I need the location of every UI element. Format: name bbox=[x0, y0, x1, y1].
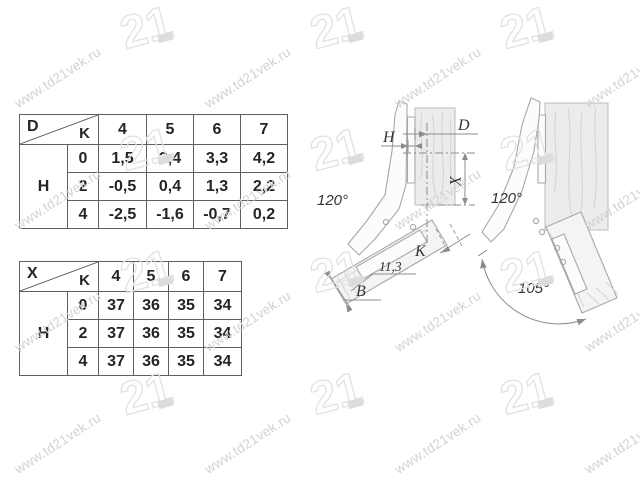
dim-label-x: X bbox=[448, 175, 465, 187]
mounting-plate bbox=[408, 117, 416, 183]
value-cell: 36 bbox=[134, 348, 169, 376]
row-key: 4 bbox=[68, 201, 99, 229]
arc-angle-label: 105° bbox=[518, 280, 549, 297]
value-cell: 37 bbox=[99, 320, 134, 348]
svg-text:21: 21 bbox=[497, 0, 558, 59]
value-cell: 0,2 bbox=[241, 201, 288, 229]
angle-label: 120° bbox=[491, 190, 522, 207]
value-cell: 4,2 bbox=[241, 145, 288, 173]
watermark-text: www.td21vek.ru bbox=[202, 410, 294, 477]
mounting-plate bbox=[538, 115, 546, 183]
value-cell: 2,4 bbox=[147, 145, 194, 173]
corner-label-bottom: K bbox=[79, 272, 90, 289]
table-corner-cell: D K bbox=[20, 115, 99, 145]
value-cell: 1,3 bbox=[194, 173, 241, 201]
col-header: 6 bbox=[194, 115, 241, 145]
col-header: 5 bbox=[134, 262, 169, 292]
svg-text:21: 21 bbox=[307, 0, 368, 59]
watermark-21-logo: 21 bbox=[497, 0, 563, 59]
value-cell: 1,5 bbox=[99, 145, 147, 173]
value-cell: 35 bbox=[169, 320, 204, 348]
svg-text:21: 21 bbox=[497, 363, 558, 425]
row-key: 0 bbox=[68, 292, 99, 320]
col-header: 4 bbox=[99, 115, 147, 145]
corner-label-top: D bbox=[27, 118, 39, 136]
col-header: 6 bbox=[169, 262, 204, 292]
pivot-rivet bbox=[533, 218, 538, 223]
table-row: H 0 1,5 2,4 3,3 4,2 bbox=[20, 145, 288, 173]
dim-label-b: B bbox=[356, 283, 366, 300]
watermark-text: www.td21vek.ru bbox=[12, 44, 104, 111]
row-group-label: H bbox=[20, 292, 68, 376]
hinge-arm bbox=[482, 98, 540, 242]
table-header-row: D K 4 5 6 7 bbox=[20, 115, 288, 145]
value-cell: 3,3 bbox=[194, 145, 241, 173]
value-cell: 35 bbox=[169, 348, 204, 376]
dim-label-d: D bbox=[457, 117, 470, 134]
angle-label: 120° bbox=[317, 192, 348, 209]
col-header: 7 bbox=[241, 115, 288, 145]
watermark-21-logo: 21 bbox=[307, 363, 373, 425]
value-cell: -0,5 bbox=[99, 173, 147, 201]
svg-text:21: 21 bbox=[307, 363, 368, 425]
hinge-arm bbox=[348, 101, 407, 255]
watermark-21-logo: 21 bbox=[497, 363, 563, 425]
watermark-text: www.td21vek.ru bbox=[202, 44, 294, 111]
dim-label-k: K bbox=[414, 243, 427, 260]
value-cell: 35 bbox=[169, 292, 204, 320]
corner-label-bottom: K bbox=[79, 125, 90, 142]
col-header: 7 bbox=[204, 262, 242, 292]
watermark-21-logo: 21 bbox=[307, 0, 373, 59]
value-cell: -1,6 bbox=[147, 201, 194, 229]
screw-hole bbox=[410, 224, 415, 229]
dim-label-h: H bbox=[382, 129, 396, 146]
value-cell: -2,5 bbox=[99, 201, 147, 229]
watermark-text: www.td21vek.ru bbox=[582, 410, 640, 477]
corner-label-top: X bbox=[27, 265, 38, 283]
watermark-text: www.td21vek.ru bbox=[12, 410, 104, 477]
value-cell: 36 bbox=[134, 292, 169, 320]
hinge-drawing-open: 105° 120° bbox=[478, 93, 640, 329]
value-cell: 2,2 bbox=[241, 173, 288, 201]
value-cell: 37 bbox=[99, 292, 134, 320]
col-header: 5 bbox=[147, 115, 194, 145]
svg-text:21: 21 bbox=[117, 0, 178, 59]
watermark-21-logo: 21 bbox=[117, 0, 183, 59]
hinge-spec-sheet: www.td21vek.ruwww.td21vek.ruwww.td21vek.… bbox=[0, 0, 640, 480]
value-cell: 0,4 bbox=[147, 173, 194, 201]
col-header: 4 bbox=[99, 262, 134, 292]
watermark-text: www.td21vek.ru bbox=[392, 410, 484, 477]
value-cell: 34 bbox=[204, 292, 242, 320]
cabinet-panel bbox=[545, 103, 608, 230]
dim-label-11-3: 11,3 bbox=[379, 259, 402, 274]
hinge-drawing-closed: D H X K 11,3 B 120° bbox=[303, 93, 485, 313]
row-key: 2 bbox=[68, 320, 99, 348]
table-header-row: X K 4 5 6 7 bbox=[20, 262, 242, 292]
table-x-values: X K 4 5 6 7 H 0 37 36 35 34 2 37 36 35 3… bbox=[19, 261, 242, 376]
table-row: H 0 37 36 35 34 bbox=[20, 292, 242, 320]
value-cell: -0,7 bbox=[194, 201, 241, 229]
row-group-label: H bbox=[20, 145, 68, 229]
table-corner-cell: X K bbox=[20, 262, 99, 292]
row-key: 2 bbox=[68, 173, 99, 201]
value-cell: 37 bbox=[99, 348, 134, 376]
row-key: 4 bbox=[68, 348, 99, 376]
table-d-values: D K 4 5 6 7 H 0 1,5 2,4 3,3 4,2 2 -0,5 0… bbox=[19, 114, 288, 229]
row-key: 0 bbox=[68, 145, 99, 173]
value-cell: 34 bbox=[204, 348, 242, 376]
value-cell: 36 bbox=[134, 320, 169, 348]
value-cell: 34 bbox=[204, 320, 242, 348]
pivot-rivet bbox=[539, 229, 544, 234]
